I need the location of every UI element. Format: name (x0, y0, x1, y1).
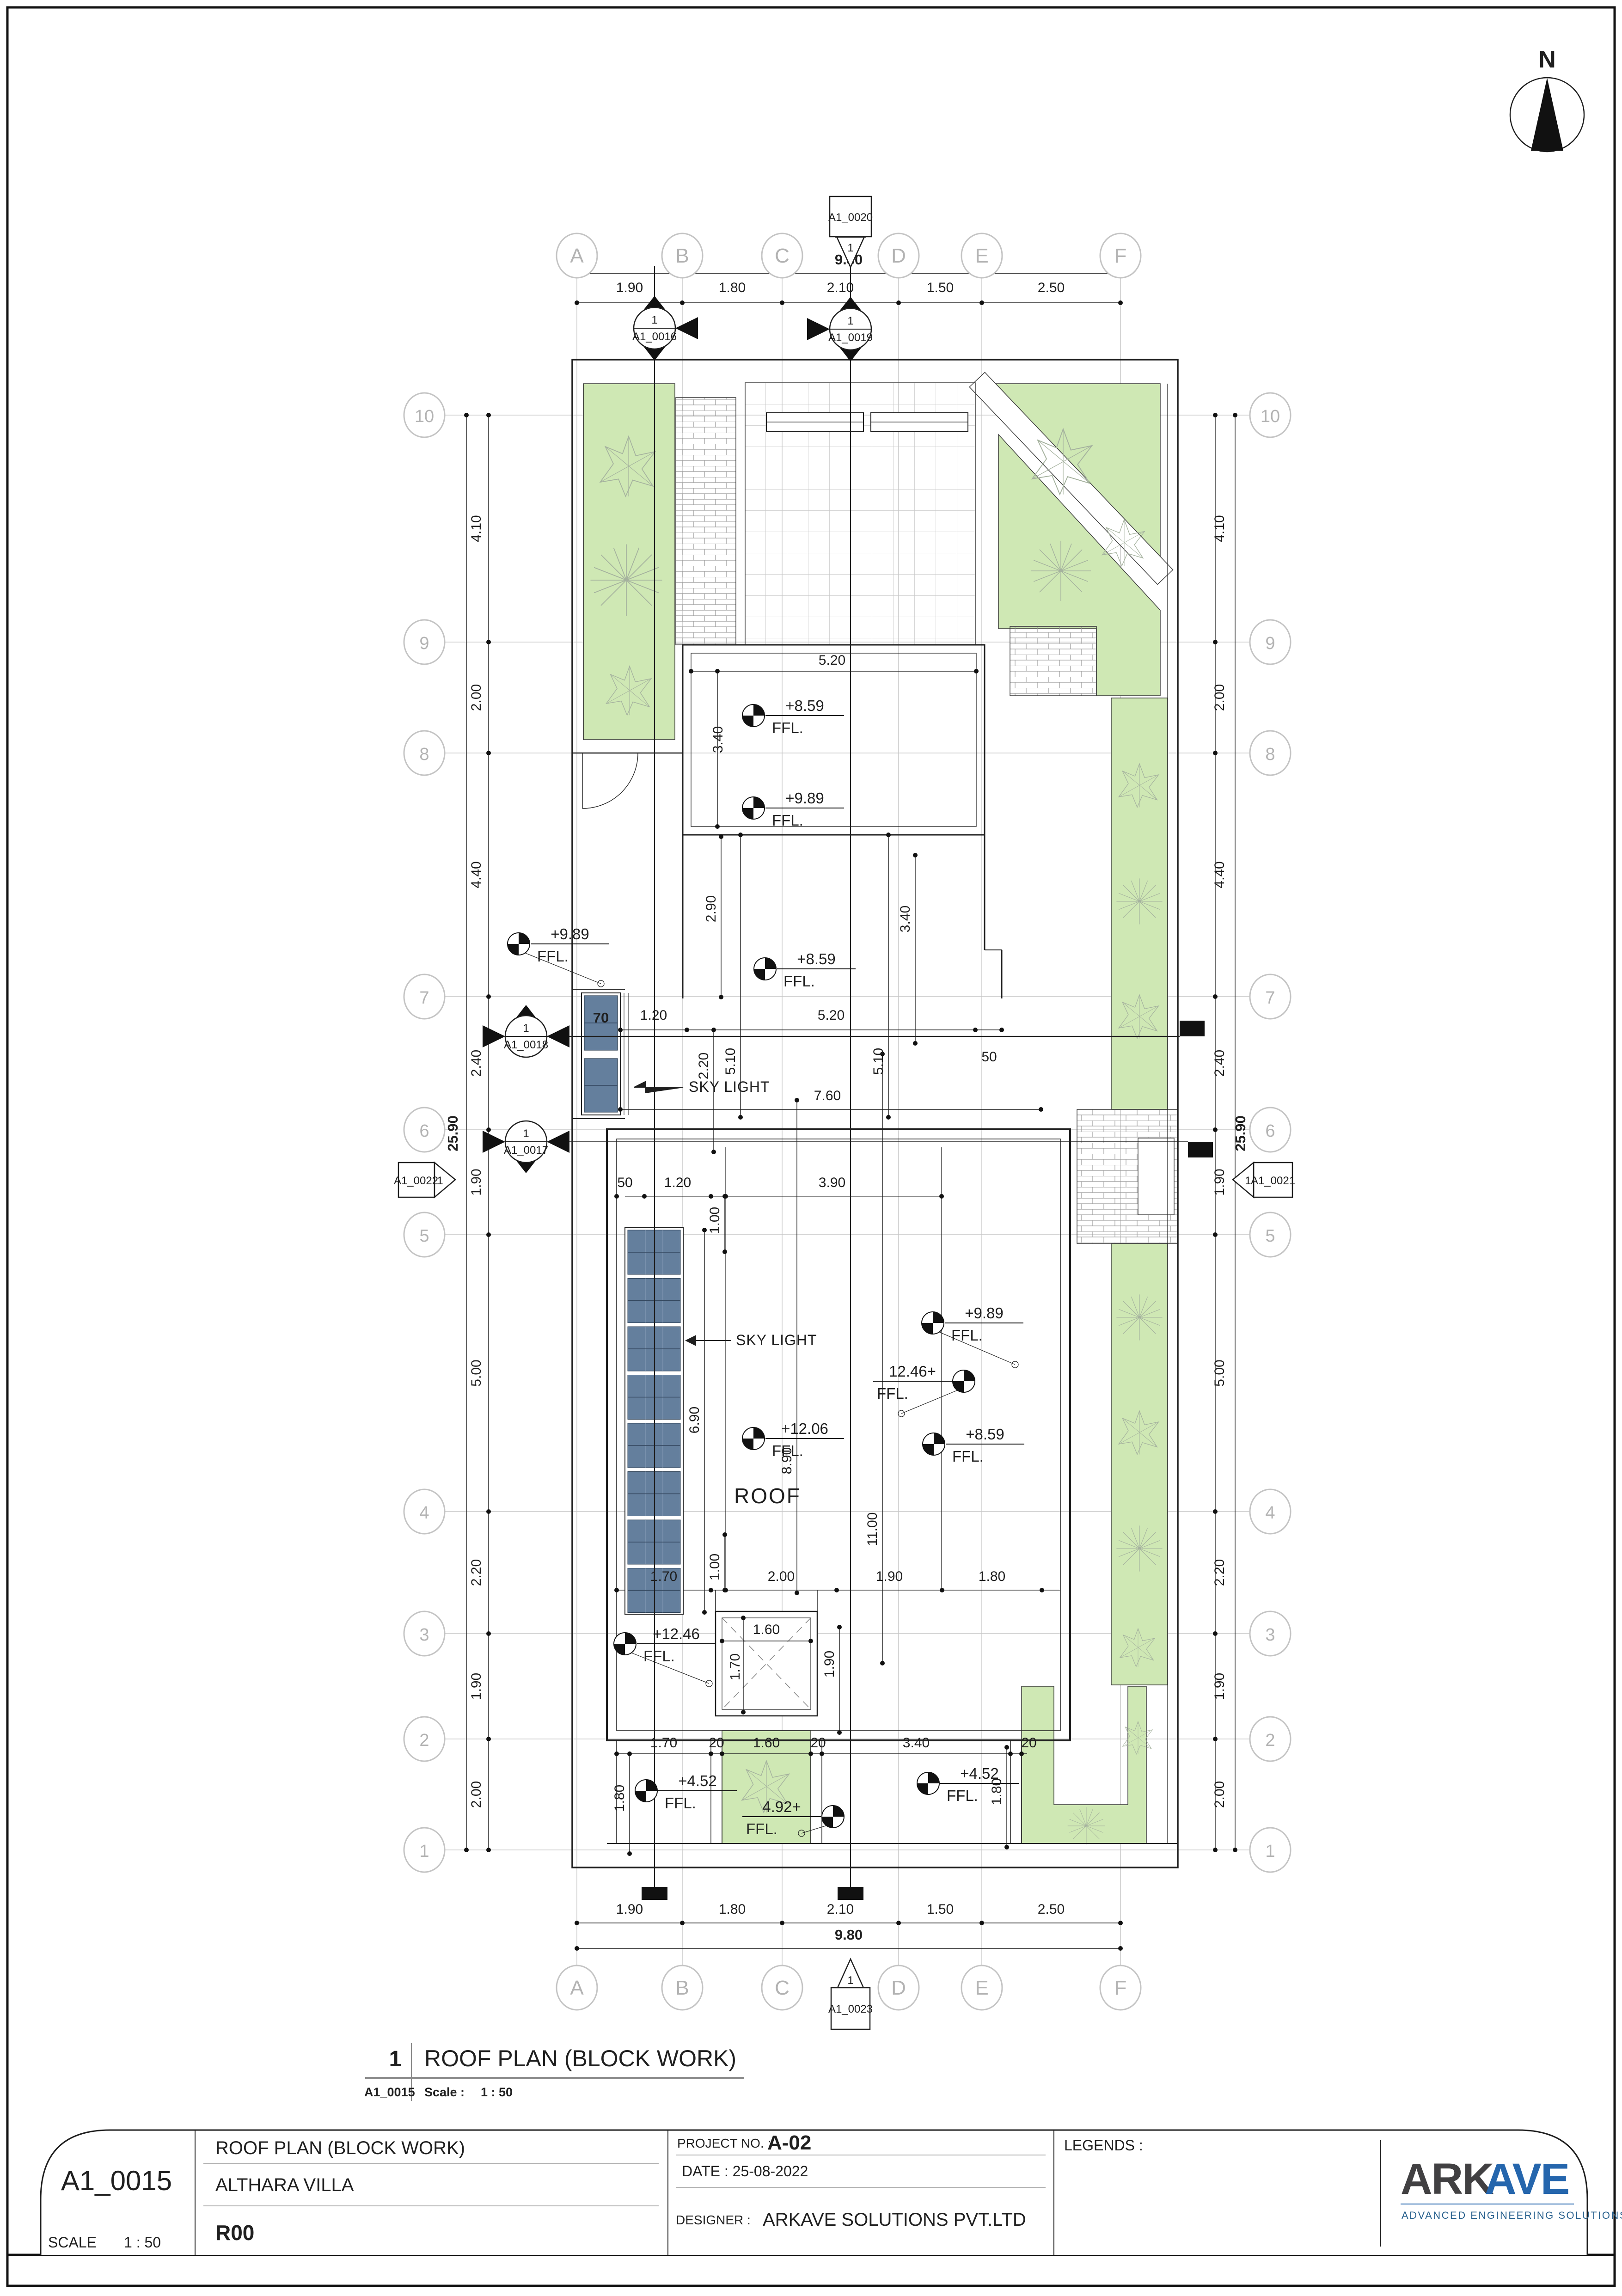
dim: 3.40 (898, 906, 913, 932)
level-value: +12.46 (653, 1625, 700, 1642)
level-marker: +9.89FFL. (508, 925, 609, 987)
dim: 1.00 (707, 1554, 722, 1580)
dim: 1.00 (707, 1207, 722, 1234)
arkave-logo: ARK AVE ADVANCED ENGINEERING SOLUTIONS (1401, 2155, 1622, 2221)
dim-tick (1213, 1509, 1218, 1514)
level-marker: +8.59FFL. (754, 950, 856, 990)
dim-tick (486, 994, 491, 999)
grid-bubble-label: 1 (419, 1842, 429, 1861)
dim-tick (680, 300, 685, 305)
drawing-title: 1 ROOF PLAN (BLOCK WORK) A1_0015 Scale :… (364, 2043, 744, 2101)
dim-tick (1213, 413, 1218, 417)
level-marker: +8.59FFL. (742, 697, 844, 736)
dim: 1.80 (612, 1785, 627, 1812)
dim-tick (486, 1127, 491, 1132)
dim-tick (738, 1115, 743, 1120)
svg-text:1: 1 (847, 1974, 853, 1987)
level-value: +8.59 (966, 1426, 1004, 1443)
grid-bubble-label: 7 (419, 988, 429, 1008)
dim-skylight-width: 70 (593, 1010, 609, 1026)
dim-tick (715, 669, 720, 673)
dim-tick (709, 1751, 713, 1756)
dim-tick (939, 1194, 944, 1199)
dim: 5.10 (723, 1048, 738, 1075)
dim-tick (715, 824, 720, 829)
logo-ark: ARK (1401, 2155, 1493, 2204)
svg-text:A1_0021: A1_0021 (1251, 1175, 1295, 1187)
dim-row: 2.40 (1212, 1050, 1227, 1077)
level-ffl: FFL. (643, 1647, 675, 1665)
level-value: 4.92+ (762, 1798, 801, 1815)
grid-bubble-label: 6 (419, 1121, 429, 1141)
dim-tick (738, 833, 743, 837)
grid-bubble-label: 10 (1261, 407, 1280, 426)
dim-tick (627, 1751, 632, 1756)
tb-revision: R00 (215, 2221, 254, 2245)
dim-row: 2.20 (469, 1559, 484, 1586)
dim-tick (642, 1194, 647, 1199)
dim-row: 2.00 (469, 1781, 484, 1808)
dim-tick (618, 1107, 623, 1112)
dim-tick (720, 1639, 724, 1643)
dim-tick (1039, 1107, 1043, 1112)
designer-label: DESIGNER : (676, 2213, 751, 2227)
dim-tick (1213, 751, 1218, 755)
dim: 2.90 (704, 895, 719, 922)
dim-row: 4.40 (1212, 861, 1227, 888)
dim-tick (913, 1041, 918, 1046)
dim-tick (680, 1921, 685, 1925)
level-value: +4.52 (960, 1765, 999, 1782)
dim: 20 (1021, 1735, 1036, 1751)
dim: 1.90 (822, 1651, 837, 1678)
drawing-scale-label: Scale : (424, 2085, 465, 2099)
project-no-label: PROJECT NO. : (677, 2136, 771, 2150)
dim-tick (486, 1631, 491, 1636)
dim-tick (741, 1616, 746, 1620)
grid-bubble-label: 9 (419, 634, 429, 653)
brick-patch-upper (1010, 626, 1096, 696)
north-needle-icon (1531, 78, 1563, 151)
north-label: N (1538, 46, 1556, 73)
dim-tick (711, 1150, 716, 1154)
marker-a1-0016: 1 A1_0016 (632, 296, 698, 361)
dim-tick (486, 1737, 491, 1741)
dim-row: 1.90 (1212, 1673, 1227, 1700)
section-flag (1180, 1021, 1205, 1036)
dim-tick (1004, 1745, 1009, 1750)
marker-a1-0020: A1_0020 (828, 211, 873, 224)
scale-value: 1 : 50 (124, 2234, 161, 2251)
svg-text:A1_0023: A1_0023 (828, 2003, 873, 2015)
marker-a1-0017: 1 A1_0017 (483, 1121, 569, 1173)
level-ffl: FFL. (951, 1327, 983, 1344)
dim-tick (886, 1115, 891, 1120)
dim-row: 5.00 (469, 1359, 484, 1386)
dim-tick (979, 300, 984, 305)
dim-col: 1.90 (616, 280, 643, 295)
dim: 20 (810, 1735, 826, 1751)
dim-tick (709, 1194, 713, 1199)
level-value: +9.89 (551, 925, 589, 943)
dim-tick (722, 1532, 727, 1537)
north-arrow: N (1510, 46, 1584, 152)
dim-tick (1213, 1232, 1218, 1237)
dim-tick (896, 1921, 901, 1925)
dim-tick (711, 1028, 716, 1032)
dim-tick (999, 1028, 1004, 1032)
drawing-scale-value: 1 : 50 (481, 2085, 513, 2099)
dim-col: 1.50 (927, 1902, 954, 1917)
dim-tick (1213, 1737, 1218, 1741)
level-ffl: FFL. (665, 1794, 696, 1812)
grid-bubble-label: 5 (1265, 1226, 1275, 1246)
dim-tick (575, 1921, 579, 1925)
dim-tick (880, 1661, 885, 1665)
dim: 11.00 (865, 1512, 880, 1546)
grid-bubble-label: B (675, 1977, 689, 1999)
dim-tick (720, 1751, 724, 1756)
grid-bubble-label: 6 (1265, 1121, 1275, 1141)
level-value: +9.89 (785, 790, 824, 807)
svg-text:1: 1 (437, 1175, 443, 1187)
grid-bubble-label: F (1114, 245, 1127, 267)
landscape-zones (583, 372, 1178, 1843)
grid-bubble-label: 4 (1265, 1503, 1275, 1523)
level-value: +9.89 (965, 1304, 1004, 1322)
dim-tick (575, 1946, 579, 1951)
dim-tick (464, 1848, 469, 1852)
dim-tick (795, 1098, 799, 1102)
level-marker: +9.89FFL. (922, 1304, 1023, 1368)
dim-tick (486, 1232, 491, 1237)
level-marker: 12.46+FFL. (873, 1363, 975, 1417)
skylight-label-1: SKY LIGHT (689, 1078, 770, 1095)
page-border (7, 7, 1615, 2286)
grid-bubble-label: D (891, 1977, 906, 1999)
dim-tick (780, 300, 784, 305)
date-value: DATE : 25-08-2022 (682, 2163, 808, 2180)
dim-tick (1008, 1751, 1013, 1756)
dim-total-width-bottom: 9.80 (835, 1927, 863, 1943)
dim-tick (1233, 413, 1237, 417)
dim: 2.20 (696, 1053, 711, 1079)
dim-tick (940, 1588, 944, 1592)
svg-text:1: 1 (847, 315, 853, 327)
dim-tick (486, 1848, 491, 1852)
dim-tick (722, 1249, 727, 1254)
dim-row: 2.00 (1212, 684, 1227, 711)
dim-tick (808, 1639, 813, 1643)
dim: 1.60 (753, 1622, 780, 1637)
dim-tick (627, 1851, 632, 1856)
dim-row: 1.90 (469, 1169, 484, 1195)
dim-tick (896, 300, 901, 305)
tb-title: ROOF PLAN (BLOCK WORK) (215, 2138, 465, 2158)
dim-tick (702, 1610, 707, 1615)
drawing-ref: A1_0015 (364, 2085, 415, 2099)
dim: 5.20 (819, 653, 845, 668)
level-value: +4.52 (678, 1772, 717, 1789)
grid-bubble-label: A (570, 245, 584, 267)
dim-total-height-left: 25.90 (445, 1115, 461, 1151)
roof-label: ROOF (734, 1484, 801, 1508)
marker-num: 1 (847, 242, 853, 254)
dim: 1.60 (753, 1735, 780, 1751)
section-flag (642, 1887, 667, 1900)
dim: 3.90 (819, 1175, 845, 1190)
sheet-number: A1_0015 (61, 2165, 172, 2196)
dim: 3.40 (710, 726, 726, 753)
scale-label: SCALE (48, 2234, 97, 2251)
dim-row: 4.10 (469, 515, 484, 542)
drawing-number: 1 (389, 2047, 402, 2071)
grid-bubble-label: 8 (1265, 745, 1275, 764)
level-ffl: FFL. (952, 1448, 984, 1465)
dim-tick (808, 1751, 813, 1756)
dim-tick (1019, 1751, 1024, 1756)
grid-bubble-label: A (570, 1977, 584, 1999)
grid-bubble-label: C (775, 245, 790, 267)
grid-bubble-label: 2 (419, 1731, 429, 1750)
grid-bubble-label: 10 (415, 407, 434, 426)
dim: 1.20 (640, 1008, 667, 1023)
svg-text:A1_0017: A1_0017 (504, 1144, 548, 1157)
dim-tick (719, 995, 723, 999)
dim-tick (741, 1710, 746, 1714)
dim: 1.80 (989, 1778, 1004, 1805)
dim-tick (974, 669, 979, 673)
level-value: +12.06 (781, 1420, 828, 1437)
level-value: +8.59 (785, 697, 824, 714)
level-ffl: FFL. (947, 1787, 978, 1804)
tb-project-name: ALTHARA VILLA (215, 2175, 354, 2195)
dim-tick (837, 1730, 842, 1735)
dim-tick (1118, 1921, 1123, 1925)
level-value: +8.59 (797, 950, 836, 967)
dim-col: 2.50 (1038, 280, 1065, 295)
dim-tick (1213, 1848, 1218, 1852)
dim-tick (709, 1588, 713, 1592)
dim-col: 1.50 (927, 280, 954, 295)
dim-col: 1.90 (616, 1902, 643, 1917)
dim-row: 4.40 (469, 861, 484, 888)
level-ffl: FFL. (537, 948, 569, 965)
grid-bubble-label: F (1114, 1977, 1127, 1999)
dim-tick (1040, 1588, 1044, 1592)
svg-text:1: 1 (523, 1127, 529, 1140)
marker-a1-0019: 1 A1_0019 (807, 297, 873, 361)
grid-bubble-label: B (675, 245, 689, 267)
dim: 50 (981, 1049, 997, 1065)
dim-tick (820, 1751, 824, 1756)
dim-tick (575, 300, 579, 305)
dim-tick (1118, 300, 1123, 305)
dim-tick (486, 751, 491, 755)
grid-bubble-label: 3 (419, 1625, 429, 1645)
level-value: 12.46+ (889, 1363, 936, 1380)
level-ffl: FFL. (783, 973, 815, 990)
grid-bubble-label: 1 (1265, 1842, 1275, 1861)
svg-text:1: 1 (651, 314, 657, 326)
svg-text:A1_0019: A1_0019 (828, 331, 873, 344)
level-marker: +8.59FFL. (923, 1426, 1024, 1465)
grid-bubble-label: 5 (419, 1226, 429, 1246)
dim-tick (1118, 1946, 1123, 1951)
dim-tick (486, 640, 491, 644)
dim-tick (486, 1509, 491, 1514)
dim: 1.80 (979, 1569, 1005, 1584)
sheet-page: 9.80 9.80 25.90 25.90 5.20 3.40 2.90 5.1… (0, 0, 1622, 2296)
dim-row: 1.90 (1212, 1169, 1227, 1195)
dim-col: 2.10 (827, 1902, 854, 1917)
dim: 1.20 (664, 1175, 691, 1190)
grid-bubble-label: E (975, 245, 988, 267)
level-marker: +9.89FFL. (742, 790, 844, 829)
marker-a1-0018: 1 A1_0018 (483, 1005, 569, 1057)
dim-tick (1213, 1127, 1218, 1132)
dim: 1.90 (876, 1569, 903, 1584)
section-flag (1188, 1142, 1213, 1157)
upper-roof-outline (683, 645, 985, 835)
level-marker: +4.52FFL. (635, 1772, 737, 1812)
dim-row: 2.00 (1212, 1781, 1227, 1808)
grid-bubble-label: C (775, 1977, 790, 1999)
dim: 5.10 (871, 1048, 886, 1075)
dim-tick (1233, 1848, 1237, 1852)
dim-tick (722, 1588, 727, 1592)
grid-bubble-label: 7 (1265, 988, 1275, 1008)
marker-a1-0023: 1 A1_0023 (828, 1959, 873, 2029)
dim: 1.70 (650, 1569, 677, 1584)
dim-tick (795, 1591, 799, 1595)
dim-tick (614, 1751, 619, 1756)
dim-tick (837, 1625, 842, 1629)
dim-total-height-right: 25.90 (1232, 1115, 1249, 1151)
dim-row: 2.00 (469, 684, 484, 711)
section-flag (838, 1887, 863, 1900)
legends-label: LEGENDS : (1064, 2137, 1143, 2154)
dim-tick (702, 1228, 707, 1232)
door-swing-arc (582, 753, 638, 808)
dim: 3.40 (903, 1735, 930, 1751)
dim-col: 2.50 (1038, 1902, 1065, 1917)
dim-row: 2.20 (1212, 1559, 1227, 1586)
grid-bubble-label: 4 (419, 1503, 429, 1523)
dim-tick (973, 1028, 978, 1032)
grid-bubble-label: D (891, 245, 906, 267)
level-ffl: FFL. (772, 1442, 803, 1459)
dim: 1.70 (728, 1653, 743, 1680)
patio-inset (1138, 1138, 1174, 1215)
dim: 20 (709, 1735, 724, 1751)
dim: 50 (617, 1175, 632, 1190)
level-ffl: FFL. (772, 812, 803, 829)
svg-text:A1_0016: A1_0016 (632, 331, 677, 343)
dim-col: 2.10 (827, 280, 854, 295)
dim-col: 1.80 (719, 1902, 746, 1917)
project-no-value: A-02 (767, 2131, 811, 2154)
dim-tick (722, 1194, 727, 1199)
level-ffl: FFL. (877, 1385, 908, 1402)
grid-bubble-label: 8 (419, 745, 429, 764)
brick-walkway (676, 398, 736, 645)
dim-tick (979, 1921, 984, 1925)
dim-tick (780, 1921, 784, 1925)
dim-tick (614, 1194, 619, 1199)
level-ffl: FFL. (746, 1820, 777, 1837)
svg-text:A1_0022: A1_0022 (394, 1175, 438, 1187)
dim-tick (618, 1028, 623, 1032)
logo-ave: AVE (1485, 2155, 1569, 2204)
svg-text:1: 1 (1245, 1175, 1251, 1187)
svg-text:A1_0018: A1_0018 (504, 1039, 548, 1051)
skylight-label-2: SKY LIGHT (736, 1332, 817, 1348)
dim-tick (1213, 994, 1218, 999)
dim-tick (464, 413, 469, 417)
dim-tick (486, 413, 491, 417)
dim: 5.20 (818, 1008, 845, 1023)
level-marker: +12.06FFL. (742, 1420, 844, 1459)
dim: 1.70 (650, 1735, 677, 1751)
dim-tick (1213, 640, 1218, 644)
level-marker: +12.46FFL. (614, 1625, 716, 1687)
dim: 7.60 (814, 1088, 841, 1103)
grid-bubble-label: 3 (1265, 1625, 1275, 1645)
dim-tick (1213, 1631, 1218, 1636)
level-ffl: FFL. (772, 719, 803, 736)
dim-tick (614, 1588, 619, 1592)
dim-row: 1.90 (469, 1673, 484, 1700)
logo-tagline: ADVANCED ENGINEERING SOLUTIONS (1402, 2210, 1622, 2221)
dim-tick (689, 669, 693, 673)
dim-tick (834, 1588, 839, 1592)
dim-tick (886, 833, 891, 837)
grid-bubble-label: E (975, 1977, 988, 1999)
designer-value: ARKAVE SOLUTIONS PVT.LTD (763, 2210, 1026, 2230)
dim-tick (685, 1028, 689, 1032)
dim: 6.90 (687, 1407, 702, 1433)
dim-tick (719, 834, 723, 839)
grid-bubble-label: 2 (1265, 1731, 1275, 1750)
dim: 2.00 (768, 1569, 795, 1584)
marker-a1-0022: A1_0022 1 (394, 1163, 455, 1197)
dim-row: 5.00 (1212, 1359, 1227, 1386)
svg-text:1: 1 (523, 1022, 529, 1035)
dim-tick (1004, 1845, 1009, 1849)
grid-bubble-label: 9 (1265, 634, 1275, 653)
dim-col: 1.80 (719, 280, 746, 295)
dim-tick (913, 853, 918, 857)
title-block: A1_0015 SCALE 1 : 50 ROOF PLAN (BLOCK WO… (41, 2130, 1622, 2255)
drawing-title-text: ROOF PLAN (BLOCK WORK) (424, 2045, 736, 2071)
dim-row: 2.40 (469, 1050, 484, 1077)
dim-row: 4.10 (1212, 515, 1227, 542)
marker-a1-0021: 1 A1_0021 (1233, 1163, 1295, 1197)
